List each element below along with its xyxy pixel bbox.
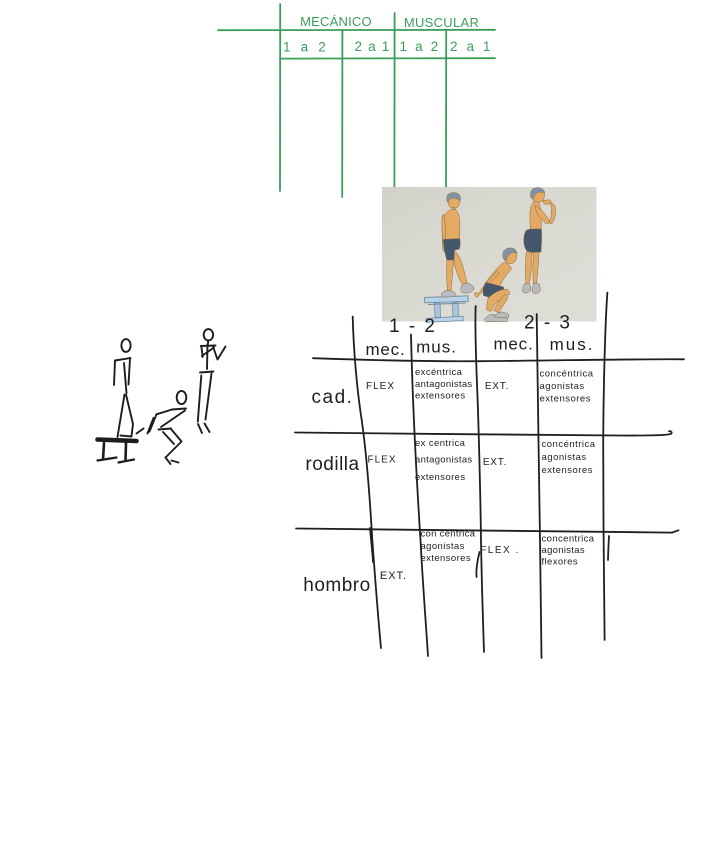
svg-text:con céntrica: con céntrica xyxy=(421,529,476,540)
svg-text:2 - 3: 2 - 3 xyxy=(524,313,572,334)
svg-text:concentrica: concentrica xyxy=(542,534,595,545)
svg-text:extensores: extensores xyxy=(542,465,593,476)
svg-text:ex centrica: ex centrica xyxy=(415,438,466,449)
svg-text:agonistas: agonistas xyxy=(542,545,585,556)
svg-text:1 - 2: 1 - 2 xyxy=(389,316,437,337)
svg-text:1 a 2: 1 a 2 xyxy=(283,40,329,55)
svg-text:1 a 2: 1 a 2 xyxy=(399,39,440,54)
svg-text:antagonistas: antagonistas xyxy=(415,379,472,390)
svg-text:2 a 1: 2 a 1 xyxy=(354,39,390,54)
svg-text:extensores: extensores xyxy=(415,472,465,483)
svg-text:EXT.: EXT. xyxy=(485,381,509,392)
svg-text:agonistas: agonistas xyxy=(421,541,465,552)
svg-text:FLEX: FLEX xyxy=(367,455,396,466)
svg-text:concéntrica: concéntrica xyxy=(542,439,596,450)
svg-text:EXT.: EXT. xyxy=(483,457,507,468)
svg-text:2 a 1: 2 a 1 xyxy=(450,39,493,54)
svg-text:rodilla: rodilla xyxy=(305,454,359,475)
svg-text:FLEX .: FLEX . xyxy=(480,545,520,556)
svg-text:mus.: mus. xyxy=(416,338,457,357)
svg-text:extensores: extensores xyxy=(421,553,471,564)
svg-text:EXT.: EXT. xyxy=(380,570,407,582)
svg-text:flexores: flexores xyxy=(542,557,578,568)
svg-text:hombro: hombro xyxy=(303,575,370,596)
svg-text:excéntrica: excéntrica xyxy=(415,367,463,378)
svg-text:agonistas: agonistas xyxy=(540,381,585,392)
svg-text:MECÁNICO: MECÁNICO xyxy=(300,14,372,29)
svg-text:MUSCULAR: MUSCULAR xyxy=(404,15,479,30)
svg-text:FLEX: FLEX xyxy=(366,381,395,392)
svg-text:antagonistas: antagonistas xyxy=(415,455,472,466)
svg-text:mus.: mus. xyxy=(550,335,595,354)
svg-text:extensores: extensores xyxy=(415,391,465,402)
svg-text:extensores: extensores xyxy=(540,394,591,405)
svg-text:cad.: cad. xyxy=(312,387,354,408)
svg-text:agonistas: agonistas xyxy=(542,452,587,463)
svg-text:mec.: mec. xyxy=(493,335,533,354)
svg-text:concéntrica: concéntrica xyxy=(540,369,594,380)
svg-text:mec.: mec. xyxy=(365,340,405,359)
